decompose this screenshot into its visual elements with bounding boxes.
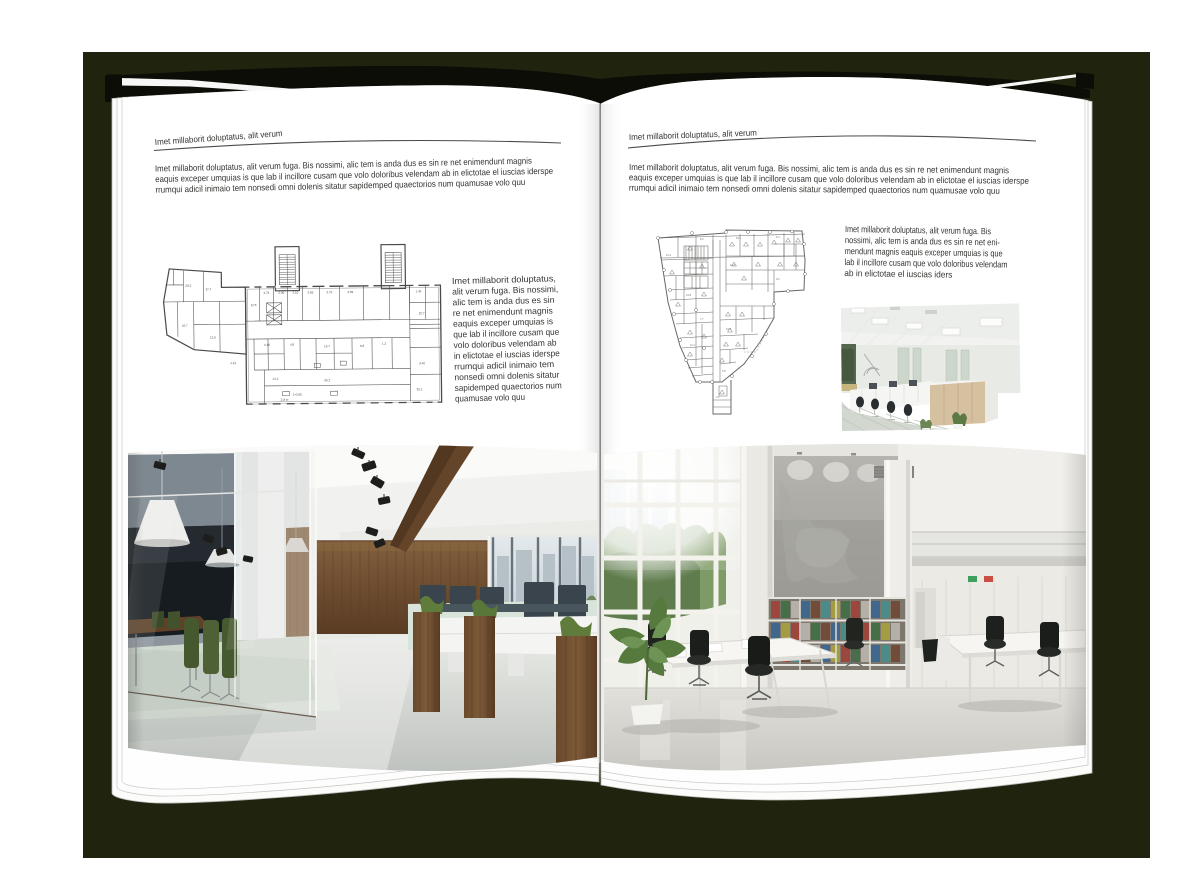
svg-text:9.2: 9.2 [776, 277, 780, 281]
svg-text:2.10: 2.10 [292, 291, 298, 295]
svg-text:10.1: 10.1 [736, 236, 742, 240]
svg-text:12.6: 12.6 [210, 335, 216, 339]
svg-text:1+2.85: 1+2.85 [293, 393, 303, 397]
svg-text:42.7: 42.7 [182, 324, 188, 328]
svg-text:9.40: 9.40 [419, 361, 425, 365]
svg-text:3.75: 3.75 [263, 291, 269, 295]
svg-text:10.7: 10.7 [324, 344, 330, 348]
svg-text:ab in elictotae el iuscias ide: ab in elictotae el iuscias iders [844, 268, 953, 280]
svg-text:3.1: 3.1 [716, 395, 720, 399]
svg-text:6.8: 6.8 [360, 344, 365, 348]
svg-text:7.7: 7.7 [700, 317, 704, 321]
svg-text:14.6: 14.6 [730, 263, 736, 267]
svg-text:37.7: 37.7 [205, 287, 211, 291]
svg-text:5.8: 5.8 [722, 369, 726, 373]
svg-text:12.8: 12.8 [251, 303, 257, 307]
svg-text:3.75: 3.75 [326, 290, 332, 294]
svg-text:4.8: 4.8 [290, 343, 295, 347]
svg-text:4.43: 4.43 [230, 361, 236, 365]
svg-text:24.8: 24.8 [686, 293, 692, 297]
svg-text:3.09: 3.09 [347, 290, 353, 294]
svg-text:quamusae volo quu: quamusae volo quu [455, 392, 525, 404]
svg-text:2-й эт: 2-й эт [281, 398, 290, 402]
svg-text:2.16: 2.16 [264, 343, 270, 347]
svg-text:32.7: 32.7 [419, 311, 425, 315]
svg-text:16.3: 16.3 [726, 327, 732, 331]
svg-text:6.4: 6.4 [776, 235, 780, 239]
svg-text:14.1: 14.1 [272, 377, 278, 381]
svg-text:1.2: 1.2 [382, 342, 387, 346]
svg-text:30.1: 30.1 [416, 387, 422, 391]
svg-text:8.2: 8.2 [700, 237, 704, 241]
svg-text:29.2: 29.2 [185, 284, 191, 288]
svg-text:1.45: 1.45 [415, 289, 421, 293]
svg-text:11.2: 11.2 [690, 343, 695, 347]
svg-text:95.2: 95.2 [324, 378, 330, 382]
svg-text:12.4: 12.4 [666, 253, 672, 257]
svg-text:2.90: 2.90 [278, 291, 284, 295]
svg-text:3.09: 3.09 [307, 290, 313, 294]
